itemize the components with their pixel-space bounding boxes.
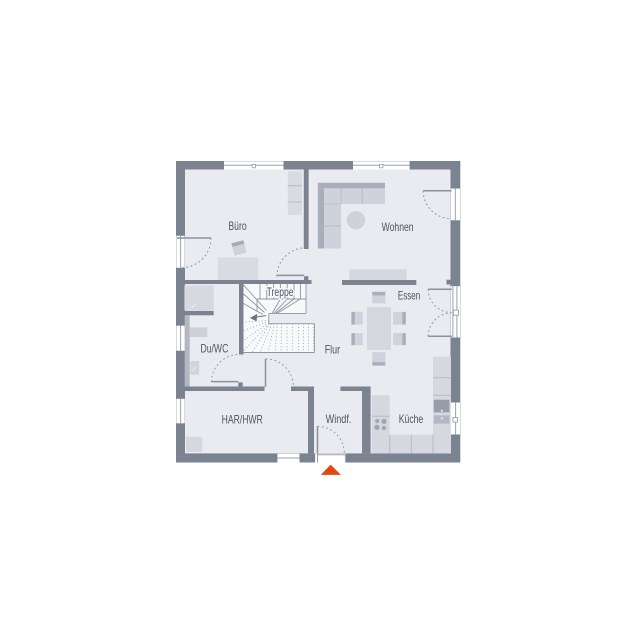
svg-text:Treppe: Treppe xyxy=(267,287,294,299)
svg-text:Flur: Flur xyxy=(325,344,341,356)
svg-text:Essen: Essen xyxy=(398,290,420,303)
svg-text:Küche: Küche xyxy=(399,414,424,426)
svg-text:Büro: Büro xyxy=(228,221,247,233)
svg-text:Du/WC: Du/WC xyxy=(201,344,229,356)
svg-text:Windf.: Windf. xyxy=(326,414,352,426)
svg-text:Wohnen: Wohnen xyxy=(382,222,414,234)
svg-text:HAR/HWR: HAR/HWR xyxy=(222,414,263,426)
